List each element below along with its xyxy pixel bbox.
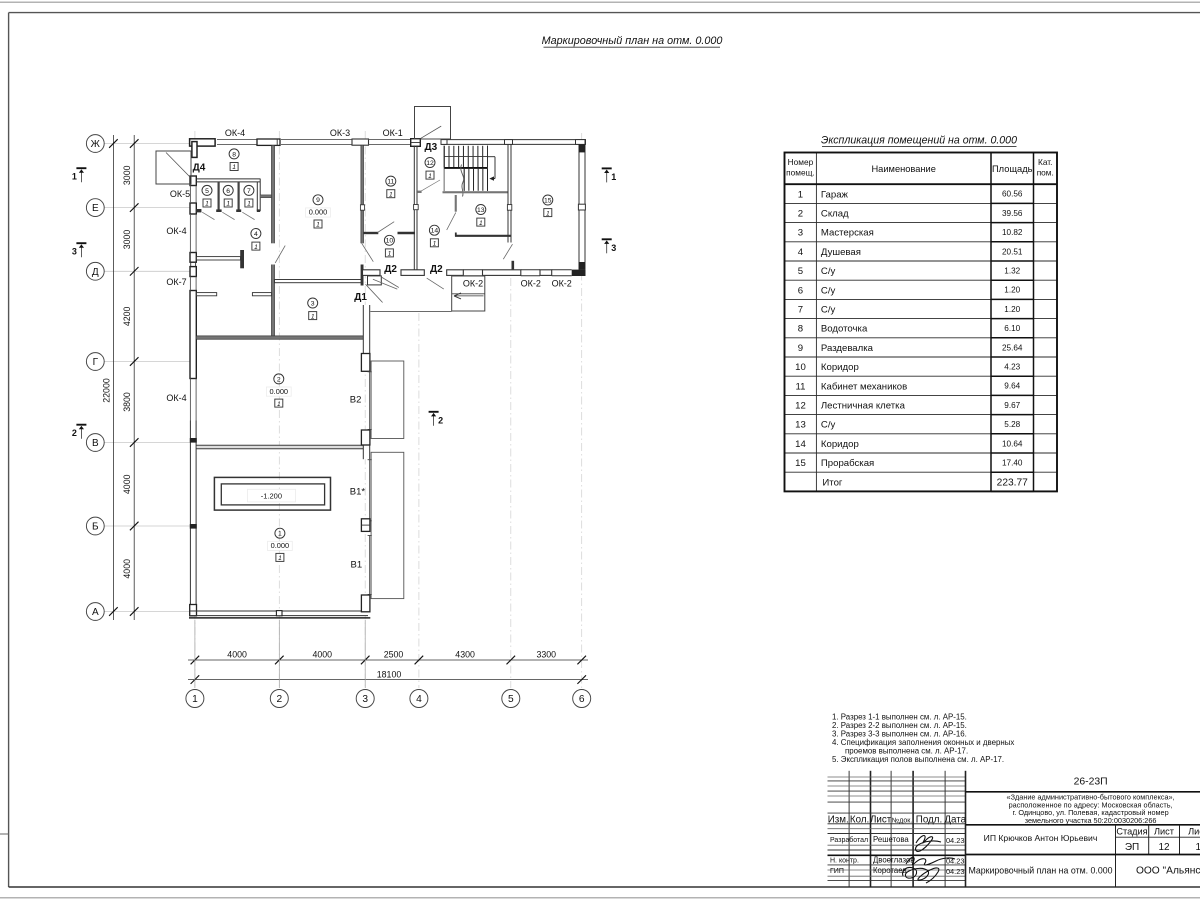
svg-text:5.28: 5.28: [1004, 420, 1020, 429]
svg-text:4.23: 4.23: [1004, 363, 1020, 372]
svg-text:6: 6: [226, 188, 230, 195]
svg-text:Лис: Лис: [1188, 826, 1200, 836]
svg-text:1: 1: [546, 210, 550, 217]
svg-text:С/у: С/у: [821, 305, 836, 316]
svg-text:С/у: С/у: [821, 266, 836, 277]
svg-text:ОК-4: ОК-4: [166, 226, 186, 236]
svg-text:помещ.: помещ.: [786, 168, 815, 178]
svg-text:3: 3: [311, 300, 315, 307]
svg-text:26-23П: 26-23П: [1074, 777, 1108, 788]
svg-text:10: 10: [386, 238, 394, 245]
svg-text:3: 3: [362, 694, 368, 705]
svg-text:14: 14: [795, 439, 806, 450]
svg-text:ОК-5: ОК-5: [170, 189, 190, 199]
svg-text:ОК-2: ОК-2: [463, 279, 483, 289]
svg-text:6: 6: [798, 285, 803, 296]
svg-text:ОК-7: ОК-7: [166, 277, 186, 287]
svg-text:Д1: Д1: [354, 292, 367, 303]
svg-text:-1.200: -1.200: [261, 491, 282, 500]
svg-text:13: 13: [795, 420, 806, 431]
svg-text:15: 15: [795, 458, 806, 469]
svg-text:14: 14: [431, 228, 439, 235]
svg-text:8: 8: [798, 324, 803, 335]
svg-text:№док.: №док.: [892, 817, 913, 824]
svg-text:1: 1: [72, 172, 77, 182]
svg-text:Стадия: Стадия: [1116, 826, 1147, 836]
svg-text:1: 1: [247, 201, 251, 208]
svg-text:4000: 4000: [227, 649, 247, 659]
svg-text:В1: В1: [350, 560, 362, 571]
svg-text:1: 1: [277, 401, 281, 408]
svg-text:3800: 3800: [122, 392, 132, 412]
svg-text:60.56: 60.56: [1002, 190, 1023, 199]
svg-text:4000: 4000: [122, 559, 132, 579]
svg-text:1: 1: [433, 241, 437, 248]
svg-text:13: 13: [477, 207, 485, 214]
svg-text:0.000: 0.000: [309, 208, 328, 217]
svg-text:ОК-2: ОК-2: [552, 278, 572, 288]
svg-text:Д: Д: [92, 267, 99, 278]
svg-text:Маркировочный план на отм. 0.0: Маркировочный план на отм. 0.000: [542, 35, 723, 47]
svg-text:В2: В2: [350, 394, 362, 405]
svg-text:8: 8: [232, 151, 236, 158]
svg-text:9.67: 9.67: [1004, 401, 1020, 410]
svg-text:4000: 4000: [313, 649, 333, 659]
svg-text:9: 9: [316, 197, 320, 204]
svg-text:12: 12: [795, 401, 806, 412]
svg-text:1: 1: [232, 164, 236, 171]
svg-text:1.20: 1.20: [1004, 286, 1020, 295]
svg-text:Кол.: Кол.: [850, 814, 869, 825]
svg-text:2: 2: [438, 415, 443, 425]
svg-text:Душевая: Душевая: [821, 247, 861, 258]
svg-text:04.23: 04.23: [946, 867, 965, 876]
svg-text:39.56: 39.56: [1002, 209, 1023, 218]
svg-text:1: 1: [479, 220, 483, 227]
svg-text:1: 1: [278, 555, 282, 562]
svg-text:Раздевалка: Раздевалка: [821, 343, 874, 354]
svg-text:1: 1: [798, 189, 803, 200]
svg-text:1: 1: [192, 694, 198, 705]
svg-text:Дата: Дата: [944, 814, 966, 825]
svg-text:223.77: 223.77: [997, 477, 1028, 488]
svg-text:В1*: В1*: [350, 487, 366, 498]
svg-text:2: 2: [72, 428, 77, 438]
svg-text:04.23: 04.23: [946, 836, 965, 845]
svg-text:Маркировочный план на отм. 0.0: Маркировочный план на отм. 0.000: [968, 865, 1112, 875]
svg-text:Изм.: Изм.: [828, 814, 849, 825]
svg-text:Лестничная клетка: Лестничная клетка: [821, 401, 906, 412]
svg-text:Е: Е: [92, 203, 99, 214]
svg-text:9: 9: [798, 343, 803, 354]
svg-text:6.10: 6.10: [1004, 324, 1020, 333]
svg-text:17.40: 17.40: [1002, 459, 1023, 468]
svg-text:Д4: Д4: [193, 163, 206, 174]
svg-text:Г: Г: [93, 357, 99, 368]
svg-text:Коридор: Коридор: [821, 362, 859, 373]
svg-text:17: 17: [1195, 842, 1200, 853]
svg-text:ИП Крючков Антон Юрьевич: ИП Крючков Антон Юрьевич: [984, 833, 1098, 843]
svg-text:0.000: 0.000: [270, 387, 289, 396]
svg-text:1: 1: [226, 201, 230, 208]
svg-text:Водоточка: Водоточка: [821, 324, 868, 335]
svg-text:ОК-4: ОК-4: [225, 128, 245, 138]
svg-text:Коридор: Коридор: [821, 439, 859, 450]
svg-text:2: 2: [277, 376, 281, 383]
svg-text:земельного участка 50:20:00302: земельного участка 50:20:0030206:266: [1025, 816, 1157, 825]
svg-text:3000: 3000: [122, 165, 132, 185]
svg-text:Коротаев: Коротаев: [873, 866, 907, 875]
svg-text:Итог: Итог: [822, 477, 843, 488]
svg-text:Склад: Склад: [821, 209, 849, 220]
svg-text:3300: 3300: [537, 649, 557, 659]
svg-text:4: 4: [416, 694, 422, 705]
svg-text:5: 5: [205, 188, 209, 195]
svg-text:2500: 2500: [384, 649, 404, 659]
svg-text:11: 11: [795, 381, 805, 392]
svg-text:1: 1: [254, 244, 258, 251]
svg-text:1: 1: [389, 191, 393, 198]
svg-text:18100: 18100: [377, 670, 402, 680]
svg-text:С/у: С/у: [821, 420, 836, 431]
svg-text:ГИП: ГИП: [830, 868, 844, 875]
svg-text:Решетова: Решетова: [873, 835, 909, 844]
svg-text:1: 1: [428, 173, 432, 180]
svg-text:1: 1: [388, 251, 392, 258]
svg-text:5: 5: [798, 266, 803, 277]
svg-text:Разработал: Разработал: [830, 836, 868, 844]
svg-text:1.32: 1.32: [1004, 267, 1020, 276]
svg-text:Прорабская: Прорабская: [821, 458, 874, 469]
svg-text:5: 5: [508, 694, 514, 705]
svg-text:10.64: 10.64: [1002, 439, 1023, 448]
svg-text:Кат.: Кат.: [1038, 157, 1052, 167]
svg-text:ОК-2: ОК-2: [521, 278, 541, 288]
svg-text:4300: 4300: [455, 649, 475, 659]
svg-text:0.000: 0.000: [271, 541, 290, 550]
svg-text:Д2: Д2: [430, 264, 443, 275]
svg-text:3: 3: [798, 228, 803, 239]
svg-text:6: 6: [579, 694, 585, 705]
svg-text:Номер: Номер: [788, 157, 814, 167]
svg-text:1: 1: [316, 222, 320, 229]
svg-text:Лист: Лист: [1154, 826, 1175, 836]
svg-text:Мастерская: Мастерская: [821, 228, 874, 239]
svg-text:10: 10: [795, 362, 806, 373]
svg-text:7: 7: [247, 188, 251, 195]
svg-text:4: 4: [254, 231, 258, 238]
svg-text:А: А: [92, 607, 99, 618]
svg-text:1: 1: [278, 531, 282, 538]
svg-text:12: 12: [1158, 842, 1170, 853]
svg-text:1: 1: [205, 201, 209, 208]
svg-text:9.64: 9.64: [1004, 382, 1020, 391]
svg-text:5. Экспликация полов выполнена: 5. Экспликация полов выполнена см. л. АР…: [832, 755, 1004, 764]
svg-text:15: 15: [544, 197, 552, 204]
svg-text:1: 1: [311, 313, 315, 320]
svg-text:Ж: Ж: [91, 139, 101, 150]
svg-text:пом.: пом.: [1037, 168, 1054, 178]
svg-text:12: 12: [426, 160, 434, 167]
svg-text:3: 3: [611, 243, 616, 253]
svg-text:4: 4: [798, 247, 804, 258]
svg-text:Д3: Д3: [424, 142, 437, 153]
svg-text:ОК-3: ОК-3: [330, 128, 350, 138]
svg-text:2: 2: [798, 209, 803, 220]
svg-text:4000: 4000: [122, 474, 132, 494]
svg-text:Лист: Лист: [870, 814, 892, 825]
svg-text:Площадь: Площадь: [992, 164, 1033, 174]
svg-text:7: 7: [798, 305, 803, 316]
svg-text:10.82: 10.82: [1002, 228, 1023, 237]
svg-text:22000: 22000: [102, 378, 112, 403]
svg-text:Н. контр.: Н. контр.: [830, 858, 859, 865]
svg-text:20.51: 20.51: [1002, 247, 1023, 256]
svg-text:Д2: Д2: [384, 264, 397, 275]
svg-text:ЭП: ЭП: [1125, 842, 1139, 853]
svg-text:Б: Б: [92, 522, 99, 533]
svg-text:1: 1: [611, 172, 616, 182]
svg-text:Наименование: Наименование: [871, 164, 935, 174]
svg-text:Гараж: Гараж: [821, 189, 849, 200]
svg-text:ООО "Альянс": ООО "Альянс": [1136, 866, 1200, 877]
svg-text:Подл.: Подл.: [916, 814, 942, 825]
svg-text:1.20: 1.20: [1004, 305, 1020, 314]
svg-text:2: 2: [276, 694, 282, 705]
svg-text:3000: 3000: [122, 230, 132, 250]
svg-text:Экспликация помещений на отм.: Экспликация помещений на отм. 0.000: [821, 135, 1017, 147]
svg-text:11: 11: [387, 179, 394, 186]
svg-text:С/у: С/у: [821, 285, 836, 296]
svg-text:ОК-4: ОК-4: [166, 393, 186, 403]
svg-text:3: 3: [72, 247, 77, 257]
svg-text:В: В: [92, 438, 99, 449]
svg-text:Кабинет механиков: Кабинет механиков: [821, 381, 907, 392]
svg-text:4200: 4200: [122, 307, 132, 327]
svg-text:25.64: 25.64: [1002, 343, 1023, 352]
svg-text:ОК-1: ОК-1: [383, 128, 403, 138]
